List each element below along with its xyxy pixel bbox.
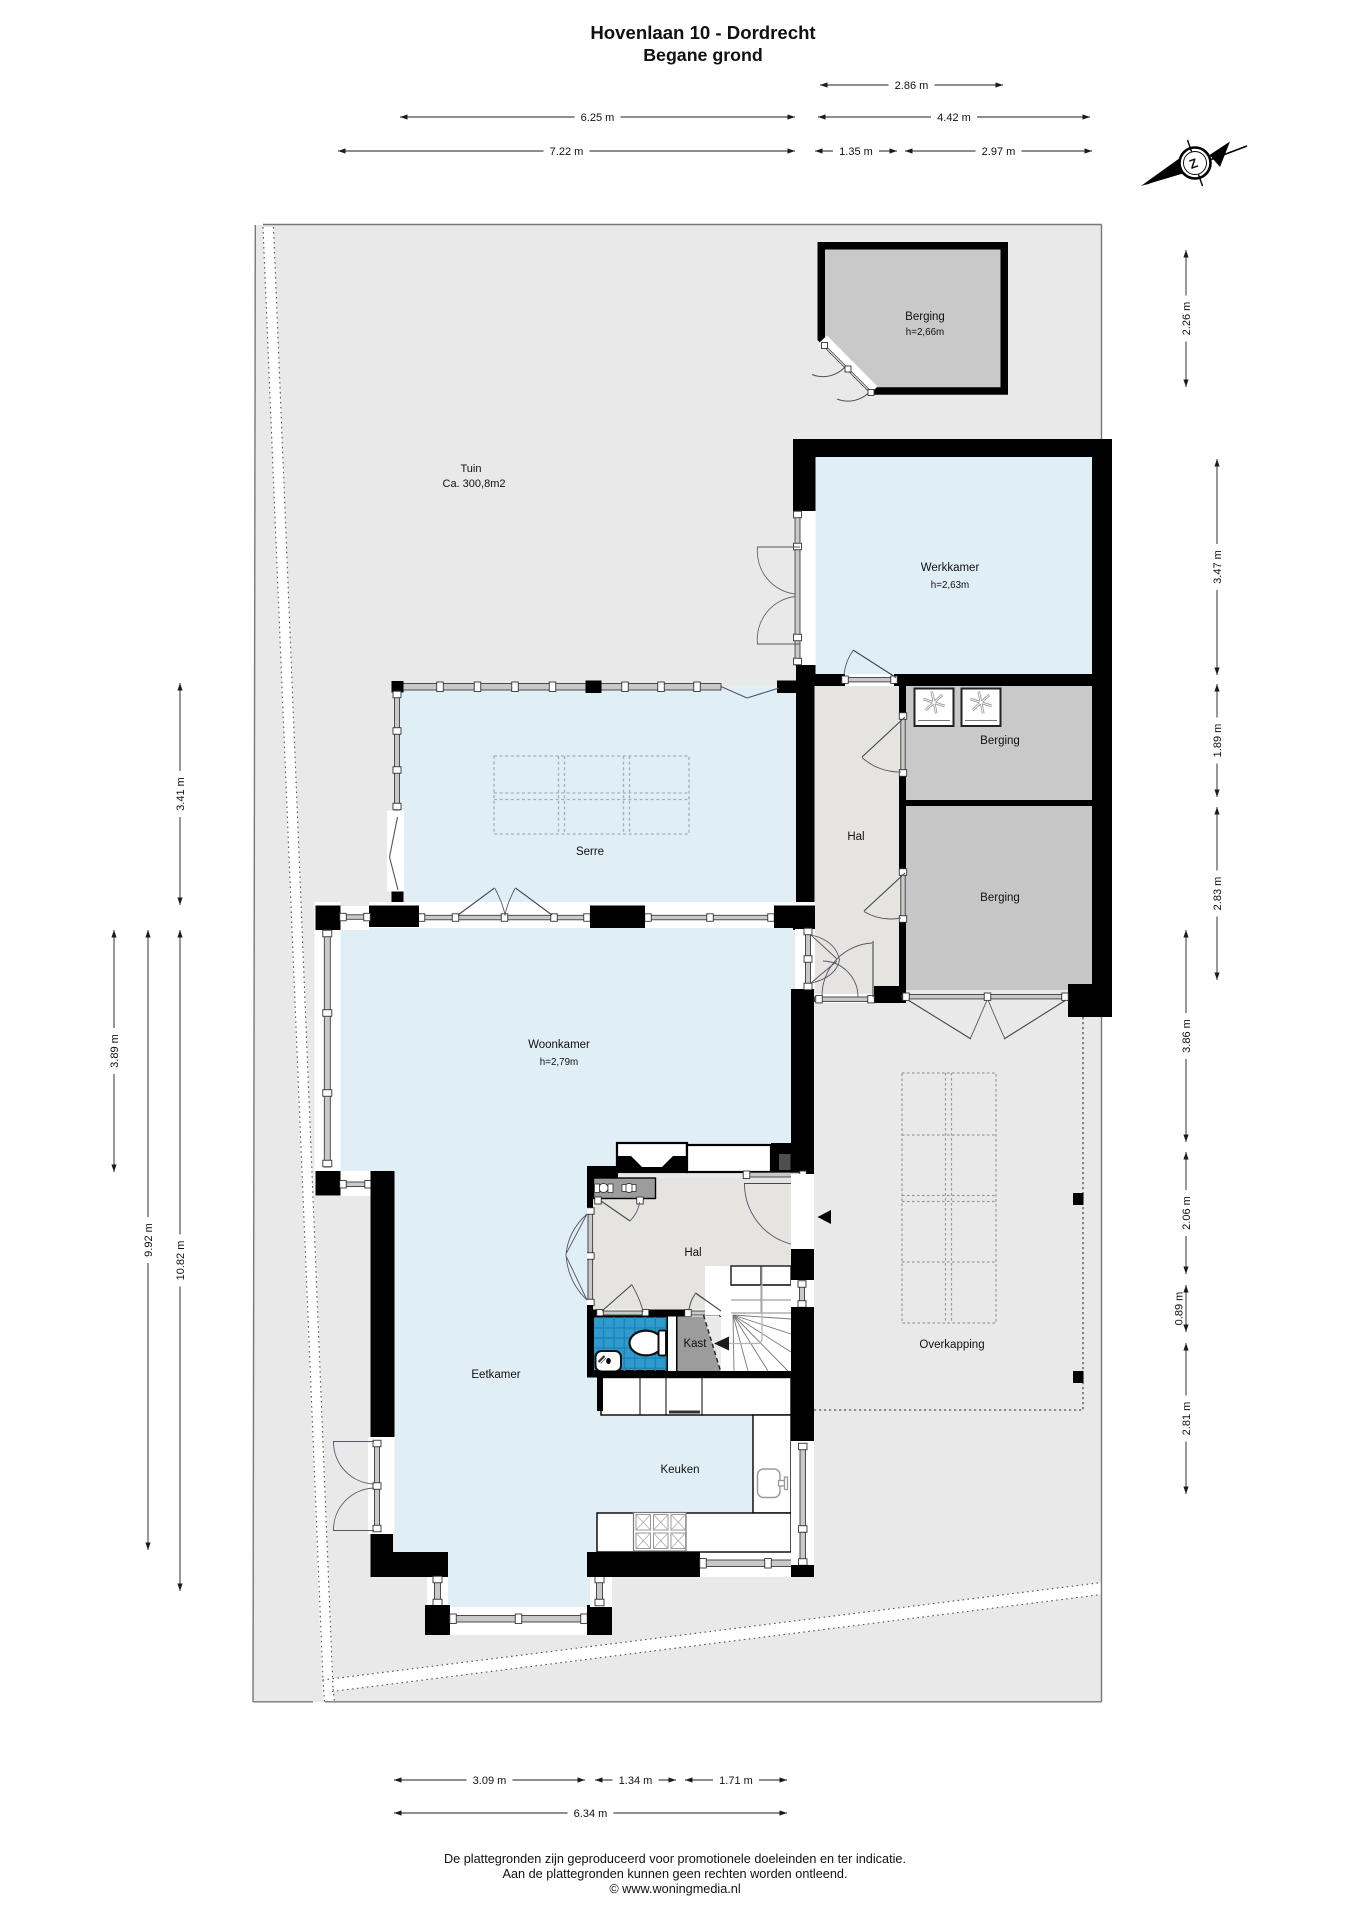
- svg-text:Ca. 300,8m2: Ca. 300,8m2: [443, 478, 506, 490]
- svg-text:Hal: Hal: [684, 1247, 701, 1259]
- svg-text:h=2,79m: h=2,79m: [540, 1057, 578, 1068]
- svg-text:9.92 m: 9.92 m: [143, 1223, 155, 1257]
- svg-text:10.82 m: 10.82 m: [175, 1241, 187, 1281]
- svg-text:h=2,63m: h=2,63m: [931, 580, 969, 591]
- svg-text:2.26 m: 2.26 m: [1181, 302, 1193, 336]
- svg-text:2.86 m: 2.86 m: [895, 80, 929, 92]
- svg-text:1.34 m: 1.34 m: [619, 1775, 653, 1787]
- svg-text:Woonkamer: Woonkamer: [528, 1039, 590, 1051]
- svg-text:Hal: Hal: [847, 831, 864, 843]
- svg-text:Begane grond: Begane grond: [643, 45, 763, 65]
- svg-text:Overkapping: Overkapping: [919, 1339, 984, 1351]
- svg-text:2.97 m: 2.97 m: [982, 146, 1016, 158]
- svg-text:Kast: Kast: [683, 1338, 707, 1350]
- svg-text:7.22 m: 7.22 m: [550, 146, 584, 158]
- svg-text:3.86 m: 3.86 m: [1181, 1019, 1193, 1053]
- svg-text:© www.woningmedia.nl: © www.woningmedia.nl: [609, 1882, 740, 1896]
- svg-text:Eetkamer: Eetkamer: [471, 1369, 520, 1381]
- svg-text:De plattegronden zijn geproduc: De plattegronden zijn geproduceerd voor …: [444, 1852, 906, 1866]
- svg-text:Werkkamer: Werkkamer: [921, 562, 980, 574]
- svg-text:1.35 m: 1.35 m: [839, 146, 873, 158]
- svg-text:4.42 m: 4.42 m: [937, 112, 971, 124]
- svg-text:3.89 m: 3.89 m: [109, 1034, 121, 1068]
- svg-text:3.41 m: 3.41 m: [175, 777, 187, 811]
- svg-text:3.09 m: 3.09 m: [473, 1775, 507, 1787]
- svg-text:Aan de plattegronden kunnen ge: Aan de plattegronden kunnen geen rechten…: [503, 1867, 848, 1881]
- svg-text:1.71 m: 1.71 m: [719, 1775, 753, 1787]
- svg-text:Hovenlaan 10 - Dordrecht: Hovenlaan 10 - Dordrecht: [590, 22, 815, 43]
- svg-text:6.25 m: 6.25 m: [581, 112, 615, 124]
- svg-text:1.89 m: 1.89 m: [1212, 724, 1224, 758]
- svg-text:2.81 m: 2.81 m: [1181, 1402, 1193, 1436]
- svg-text:Berging: Berging: [980, 735, 1020, 747]
- svg-text:Berging: Berging: [905, 311, 945, 323]
- svg-text:6.34 m: 6.34 m: [574, 1808, 608, 1820]
- svg-text:0.89 m: 0.89 m: [1173, 1292, 1185, 1326]
- svg-text:h=2,66m: h=2,66m: [906, 327, 944, 338]
- svg-text:3.47 m: 3.47 m: [1212, 550, 1224, 584]
- svg-text:Tuin: Tuin: [461, 463, 482, 475]
- svg-text:Serre: Serre: [576, 846, 604, 858]
- svg-text:2.06 m: 2.06 m: [1181, 1196, 1193, 1230]
- svg-text:Berging: Berging: [980, 892, 1020, 904]
- svg-text:Keuken: Keuken: [660, 1464, 699, 1476]
- svg-text:2.83 m: 2.83 m: [1212, 877, 1224, 911]
